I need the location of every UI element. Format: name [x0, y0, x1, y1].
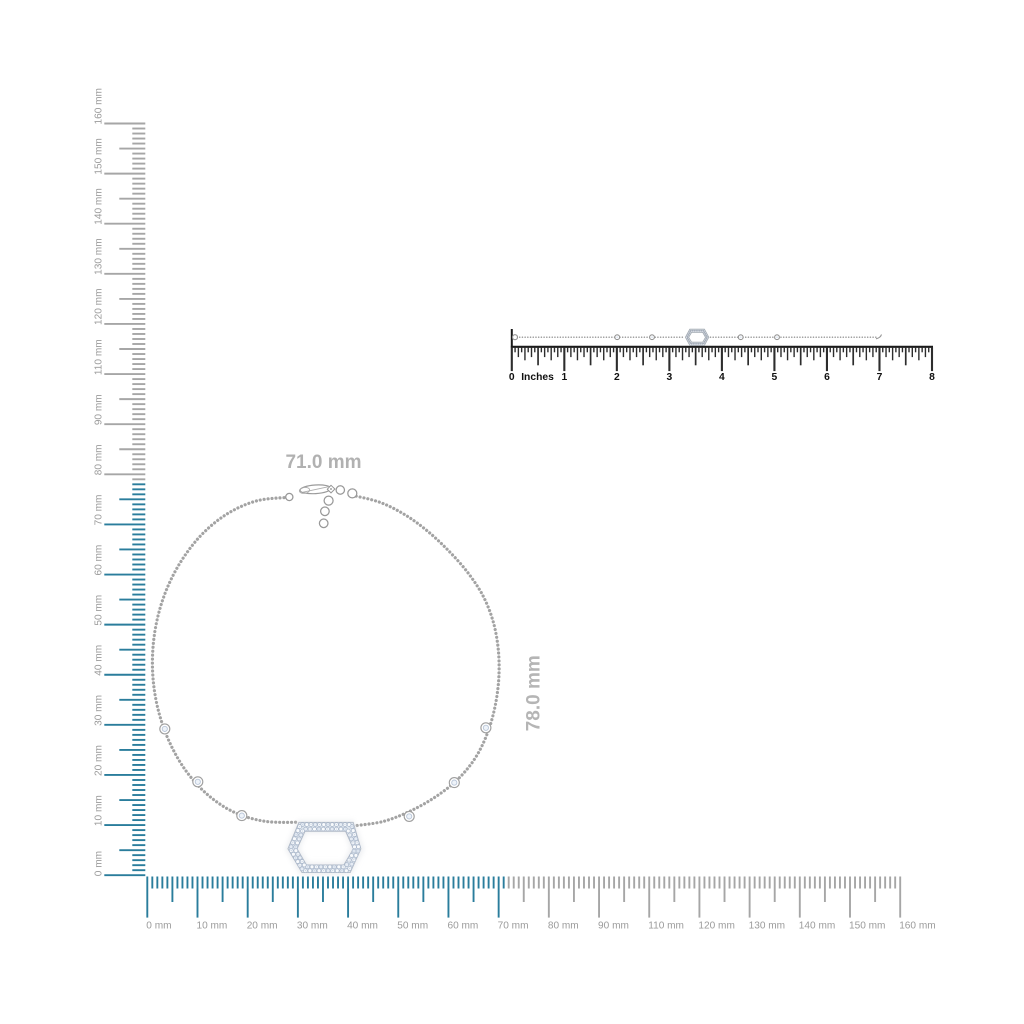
- svg-text:150 mm: 150 mm: [94, 138, 105, 174]
- svg-text:8: 8: [929, 372, 935, 383]
- svg-text:10 mm: 10 mm: [94, 795, 105, 826]
- svg-text:50 mm: 50 mm: [397, 921, 428, 932]
- svg-text:70 mm: 70 mm: [94, 495, 105, 526]
- svg-text:6: 6: [824, 372, 830, 383]
- svg-text:160 mm: 160 mm: [899, 921, 935, 932]
- svg-text:60 mm: 60 mm: [447, 921, 478, 932]
- svg-text:140 mm: 140 mm: [94, 188, 105, 224]
- svg-text:4: 4: [719, 372, 725, 383]
- svg-text:1: 1: [561, 372, 567, 383]
- svg-text:5: 5: [772, 372, 778, 383]
- svg-text:30 mm: 30 mm: [94, 695, 105, 726]
- svg-text:120 mm: 120 mm: [698, 921, 734, 932]
- svg-text:20 mm: 20 mm: [247, 921, 278, 932]
- svg-text:2: 2: [614, 372, 620, 383]
- svg-text:70 mm: 70 mm: [498, 921, 529, 932]
- svg-text:0 mm: 0 mm: [94, 851, 105, 876]
- svg-text:140 mm: 140 mm: [799, 921, 835, 932]
- svg-text:80 mm: 80 mm: [94, 444, 105, 475]
- svg-text:71.0 mm: 71.0 mm: [285, 452, 361, 473]
- svg-text:130 mm: 130 mm: [94, 238, 105, 274]
- svg-text:50 mm: 50 mm: [94, 595, 105, 626]
- svg-text:120 mm: 120 mm: [94, 288, 105, 324]
- svg-text:3: 3: [667, 372, 673, 383]
- svg-text:Inches: Inches: [521, 372, 554, 383]
- svg-text:80 mm: 80 mm: [548, 921, 579, 932]
- svg-text:10 mm: 10 mm: [196, 921, 227, 932]
- svg-text:40 mm: 40 mm: [347, 921, 378, 932]
- svg-text:40 mm: 40 mm: [94, 645, 105, 676]
- svg-text:90 mm: 90 mm: [598, 921, 629, 932]
- svg-text:0: 0: [509, 372, 515, 383]
- svg-text:20 mm: 20 mm: [94, 745, 105, 776]
- svg-text:110 mm: 110 mm: [648, 921, 684, 932]
- svg-text:0 mm: 0 mm: [146, 921, 171, 932]
- svg-text:7: 7: [877, 372, 883, 383]
- svg-text:30 mm: 30 mm: [297, 921, 328, 932]
- svg-text:60 mm: 60 mm: [94, 545, 105, 576]
- svg-text:110 mm: 110 mm: [94, 339, 105, 375]
- svg-text:78.0 mm: 78.0 mm: [523, 655, 544, 731]
- svg-text:130 mm: 130 mm: [749, 921, 785, 932]
- svg-text:90 mm: 90 mm: [94, 394, 105, 425]
- svg-text:160 mm: 160 mm: [94, 88, 105, 124]
- svg-text:150 mm: 150 mm: [849, 921, 885, 932]
